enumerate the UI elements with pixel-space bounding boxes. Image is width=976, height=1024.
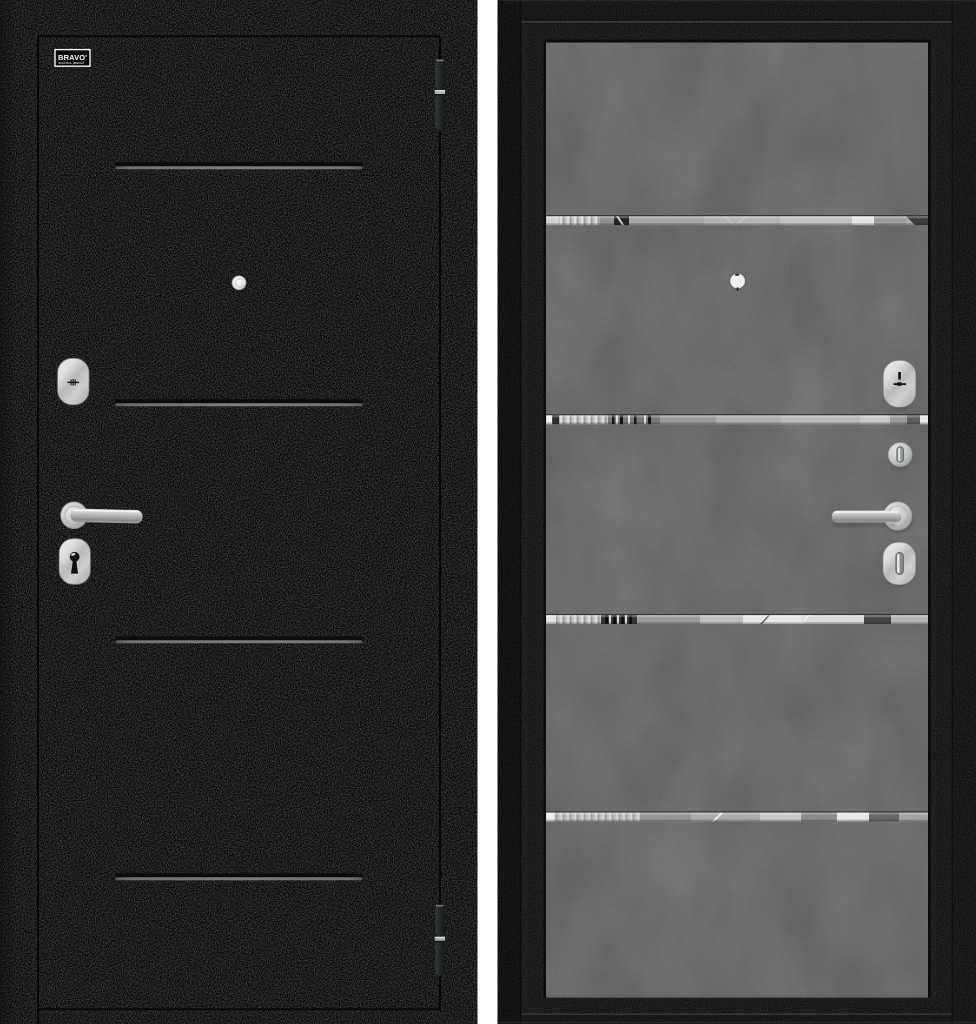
svg-text:BRAVO': BRAVO' <box>58 53 87 62</box>
svg-text:ФАБРИКА ДВЕРЕЙ: ФАБРИКА ДВЕРЕЙ <box>58 61 84 65</box>
